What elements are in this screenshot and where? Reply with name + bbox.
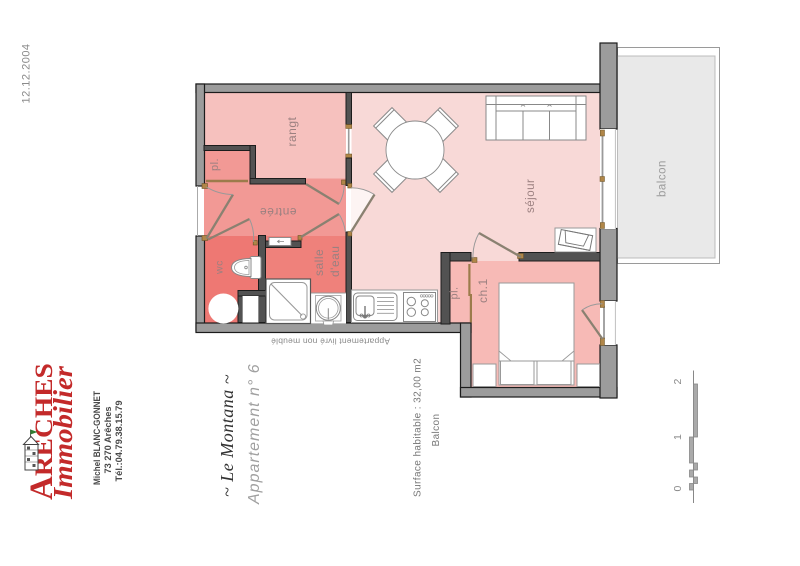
svg-text:balcon: balcon (657, 160, 669, 197)
svg-text:d'eau: d'eau (328, 246, 342, 278)
svg-text:entrée: entrée (259, 205, 296, 219)
svg-text:Surface habitable : 32,00 m2: Surface habitable : 32,00 m2 (413, 358, 424, 497)
svg-text:pl.: pl. (449, 286, 461, 299)
svg-text:séjour: séjour (525, 179, 537, 213)
svg-text:1: 1 (672, 434, 684, 440)
svg-text:pl.: pl. (209, 158, 221, 171)
svg-text:Appartement livré non meublé: Appartement livré non meublé (271, 337, 390, 347)
svg-text:Balcon: Balcon (431, 414, 442, 447)
svg-text:Immobilier: Immobilier (48, 365, 78, 500)
svg-text:73 270 Arêches: 73 270 Arêches (103, 407, 114, 474)
svg-text:0: 0 (672, 485, 684, 491)
svg-text:wc: wc (214, 260, 226, 275)
svg-text:salle: salle (312, 249, 326, 276)
svg-text:rangt: rangt (285, 116, 299, 146)
svg-text:ch.1: ch.1 (476, 278, 490, 303)
svg-text:2: 2 (672, 378, 684, 384)
svg-text:Tél.:04.79.38.15.79: Tél.:04.79.38.15.79 (114, 401, 125, 482)
svg-text:Michel BLANC-GONNET: Michel BLANC-GONNET (92, 391, 103, 485)
svg-text:~ Le Montana ~: ~ Le Montana ~ (217, 374, 237, 497)
svg-text:Appartement n° 6: Appartement n° 6 (246, 363, 263, 505)
svg-text:12.12.2004: 12.12.2004 (21, 43, 33, 103)
